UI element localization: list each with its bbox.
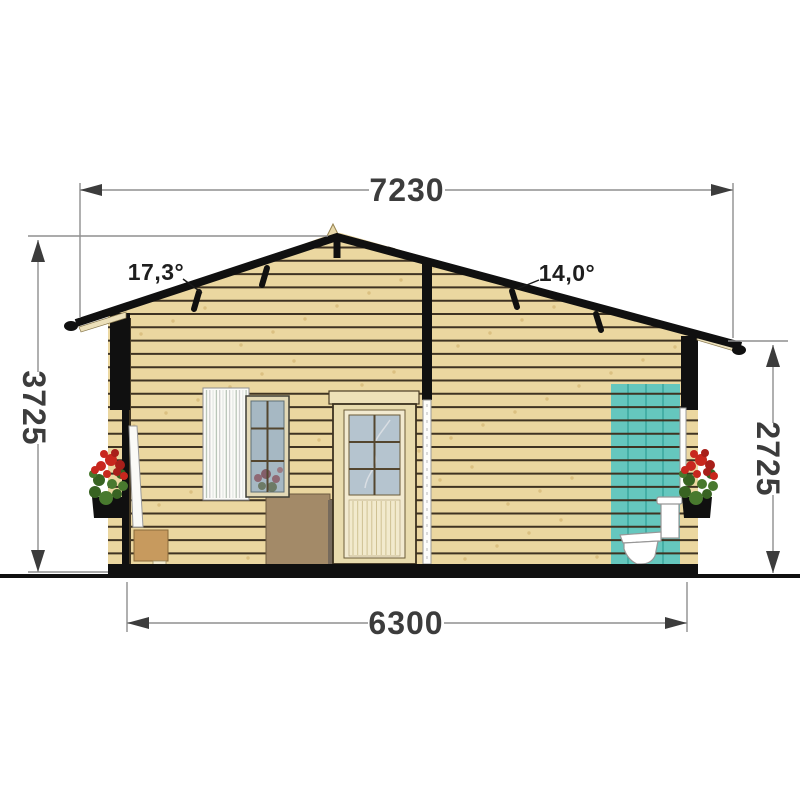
window-flower [258,482,266,490]
flower-bloom [91,466,99,474]
flower-foliage [679,486,691,498]
elevation-drawing-page: 7230 3725 2725 6300 17,3° 14,0° [0,0,800,800]
partition-wall-cut [422,261,432,564]
wood-speckle [139,332,142,335]
wood-speckle [456,344,459,347]
flower-foliage [118,481,128,491]
wood-speckle [196,398,199,401]
flower-foliage [107,479,117,489]
wood-speckle [164,411,167,414]
toilet-tank-lid [657,497,682,504]
flower-foliage [697,479,707,489]
flower-bloom [103,470,111,478]
cabinet-small [134,530,168,561]
flower-bloom [681,466,689,474]
wood-speckle [171,319,174,322]
entrance-door [329,391,419,564]
wood-speckle [609,371,612,374]
window-flower [261,469,271,479]
flower-bloom [100,450,108,458]
flower-bloom [703,468,711,476]
wood-speckle [520,318,523,321]
door-beadboard [349,500,400,556]
wood-speckle [360,383,363,386]
toilet-tank [661,502,679,538]
ground [0,564,800,578]
overall-height-label: 3725 [16,370,52,445]
wood-speckle [239,343,242,346]
wood-speckle [203,306,206,309]
door-lintel [329,391,419,404]
flower-foliage [702,489,712,499]
wood-speckle [367,291,370,294]
wood-speckle [438,478,441,481]
wood-speckle [417,449,420,452]
wood-speckle [449,436,452,439]
wall-height-label: 2725 [750,421,786,496]
roof-span-label: 7230 [369,172,444,208]
wood-speckle [260,372,263,375]
flower-bloom [113,468,121,476]
wood-speckle [463,557,466,560]
wood-speckle [399,278,402,281]
partition-upper-black [422,261,432,400]
wood-speckle [317,438,320,441]
window-flower [254,474,262,482]
elevation-drawing: 7230 3725 2725 6300 17,3° 14,0° [0,0,800,800]
wood-speckle [527,531,530,534]
wood-speckle [570,476,573,479]
window-flower [277,467,283,473]
wood-speckle [552,305,555,308]
floor-span-label: 6300 [368,605,443,641]
wood-speckle [495,544,498,547]
flower-bloom [710,472,718,480]
flower-foliage [708,481,718,491]
furniture-panel [266,494,330,566]
roof-angle-right-label: 14,0° [539,260,595,286]
wood-speckle [246,556,249,559]
gutter-end-left [64,321,78,331]
wood-speckle [157,503,160,506]
window-flower [272,475,280,483]
wood-speckle [392,370,395,373]
flower-foliage [112,489,122,499]
right-cut-upper [681,336,698,410]
wood-speckle [595,555,598,558]
wood-speckle [641,358,644,361]
left-cut-upper [110,313,130,410]
wood-speckle [488,331,491,334]
flower-foliage [689,491,703,505]
flower-bloom [701,449,709,457]
wood-speckle [335,304,338,307]
flower-bloom [693,470,701,478]
wood-speckle [559,518,562,521]
gutter-end-right [732,345,746,355]
wood-speckle [481,423,484,426]
wood-speckle [189,490,192,493]
wood-speckle [545,397,548,400]
wood-speckle [577,384,580,387]
roof-angle-left-label: 17,3° [128,259,184,285]
ground-line [0,574,800,578]
wood-speckle [292,359,295,362]
wood-speckle [513,410,516,413]
flower-foliage [99,491,113,505]
wood-speckle [303,317,306,320]
wood-speckle [673,345,676,348]
wood-speckle [506,502,509,505]
flower-foliage [89,486,101,498]
flower-bloom [690,450,698,458]
wood-speckle [470,465,473,468]
flower-bloom [120,472,128,480]
wood-speckle [271,330,274,333]
window [246,396,289,497]
partition-lower-white [423,400,431,564]
flower-bloom [111,449,119,457]
wood-speckle [538,489,541,492]
curtain [203,388,249,500]
